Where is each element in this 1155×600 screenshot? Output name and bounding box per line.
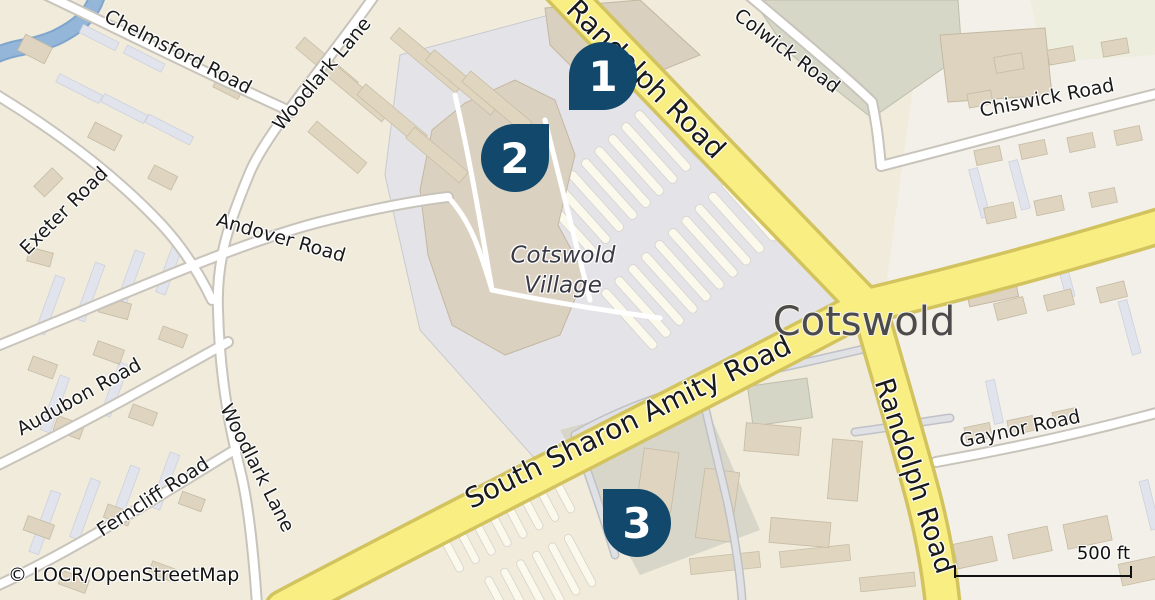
scale-bar: 500 ft: [954, 543, 1132, 578]
marker-3-number: 3: [622, 499, 651, 548]
scale-bar-label: 500 ft: [954, 543, 1132, 564]
map-marker-2[interactable]: 2: [481, 124, 549, 192]
map-attribution: © LOCR/OpenStreetMap: [8, 564, 239, 586]
map-canvas[interactable]: Chelmsford Road Woodlark Lane Exeter Roa…: [0, 0, 1155, 600]
map-marker-1[interactable]: 1: [569, 42, 637, 110]
marker-1-number: 1: [588, 52, 617, 101]
marker-2-number: 2: [500, 134, 529, 183]
map-marker-3[interactable]: 3: [603, 489, 671, 557]
scale-bar-line: [954, 566, 1132, 578]
